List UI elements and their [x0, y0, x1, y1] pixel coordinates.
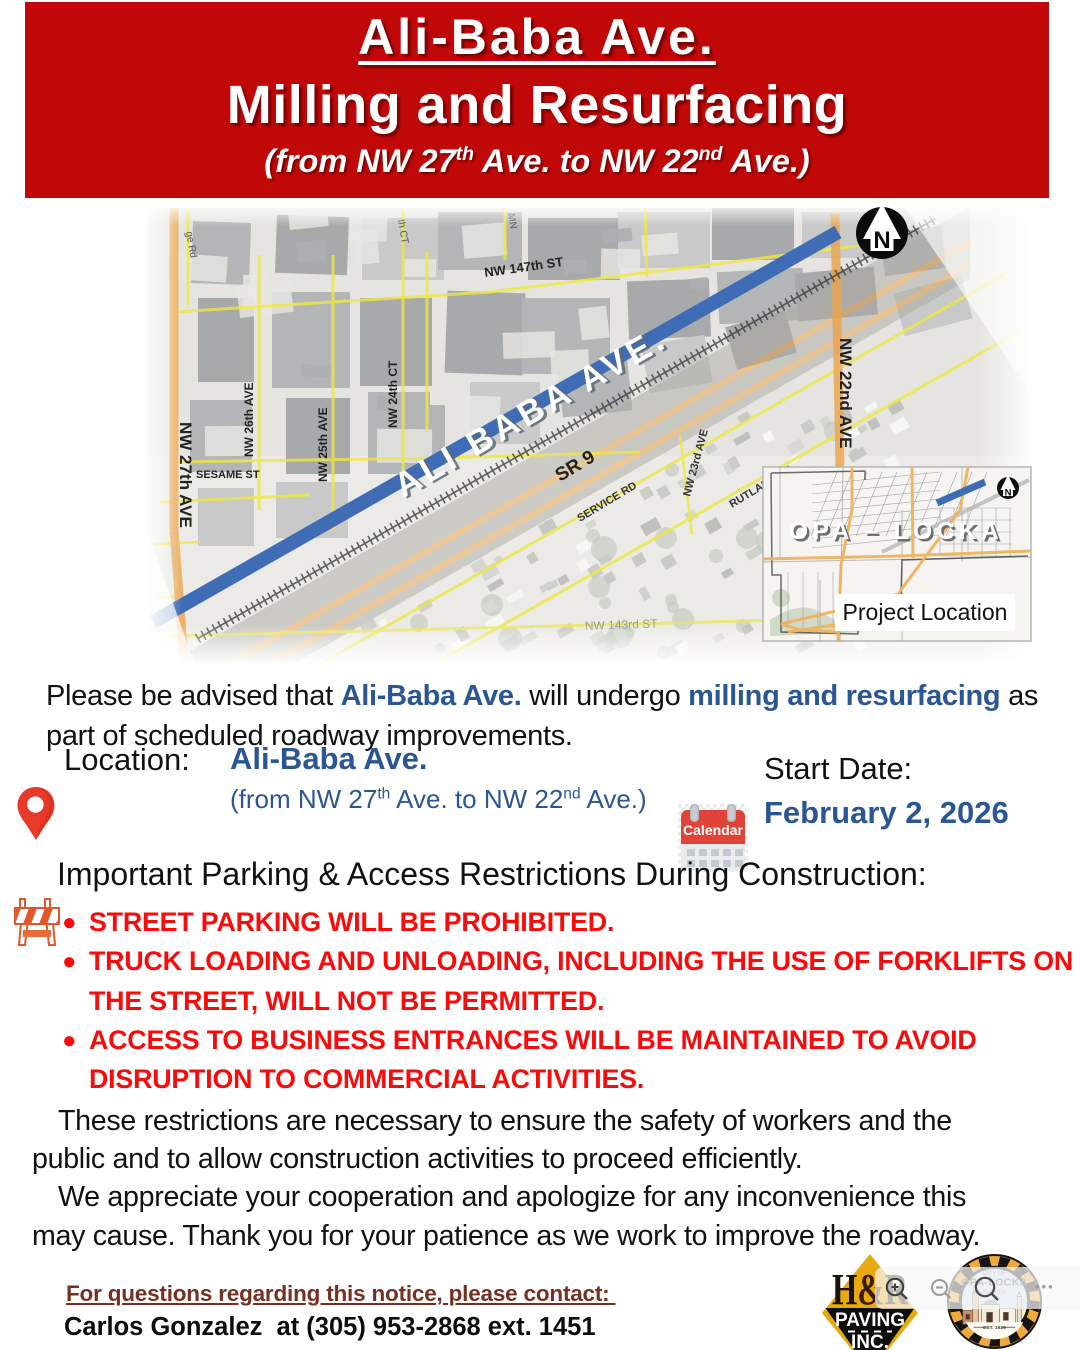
svg-text:PAVING: PAVING	[835, 1310, 905, 1331]
svg-text:NW 26th AVE: NW 26th AVE	[242, 382, 256, 457]
svg-text:Project Location: Project Location	[843, 599, 1008, 625]
svg-text:SESAME ST: SESAME ST	[196, 469, 260, 481]
svg-text:INC.: INC.	[851, 1332, 889, 1350]
svg-text:Calendar: Calendar	[683, 822, 743, 838]
svg-text:NW 22nd AVE: NW 22nd AVE	[836, 338, 855, 449]
svg-text:N: N	[1005, 488, 1012, 499]
svg-text:N: N	[873, 227, 890, 254]
svg-text:EST. 1926: EST. 1926	[983, 1325, 1006, 1331]
svg-text:NW 24th CT: NW 24th CT	[386, 360, 400, 428]
svg-text:NW 25th AVE: NW 25th AVE	[316, 407, 330, 482]
svg-text:OPA – LOCKA: OPA – LOCKA	[789, 518, 1003, 545]
